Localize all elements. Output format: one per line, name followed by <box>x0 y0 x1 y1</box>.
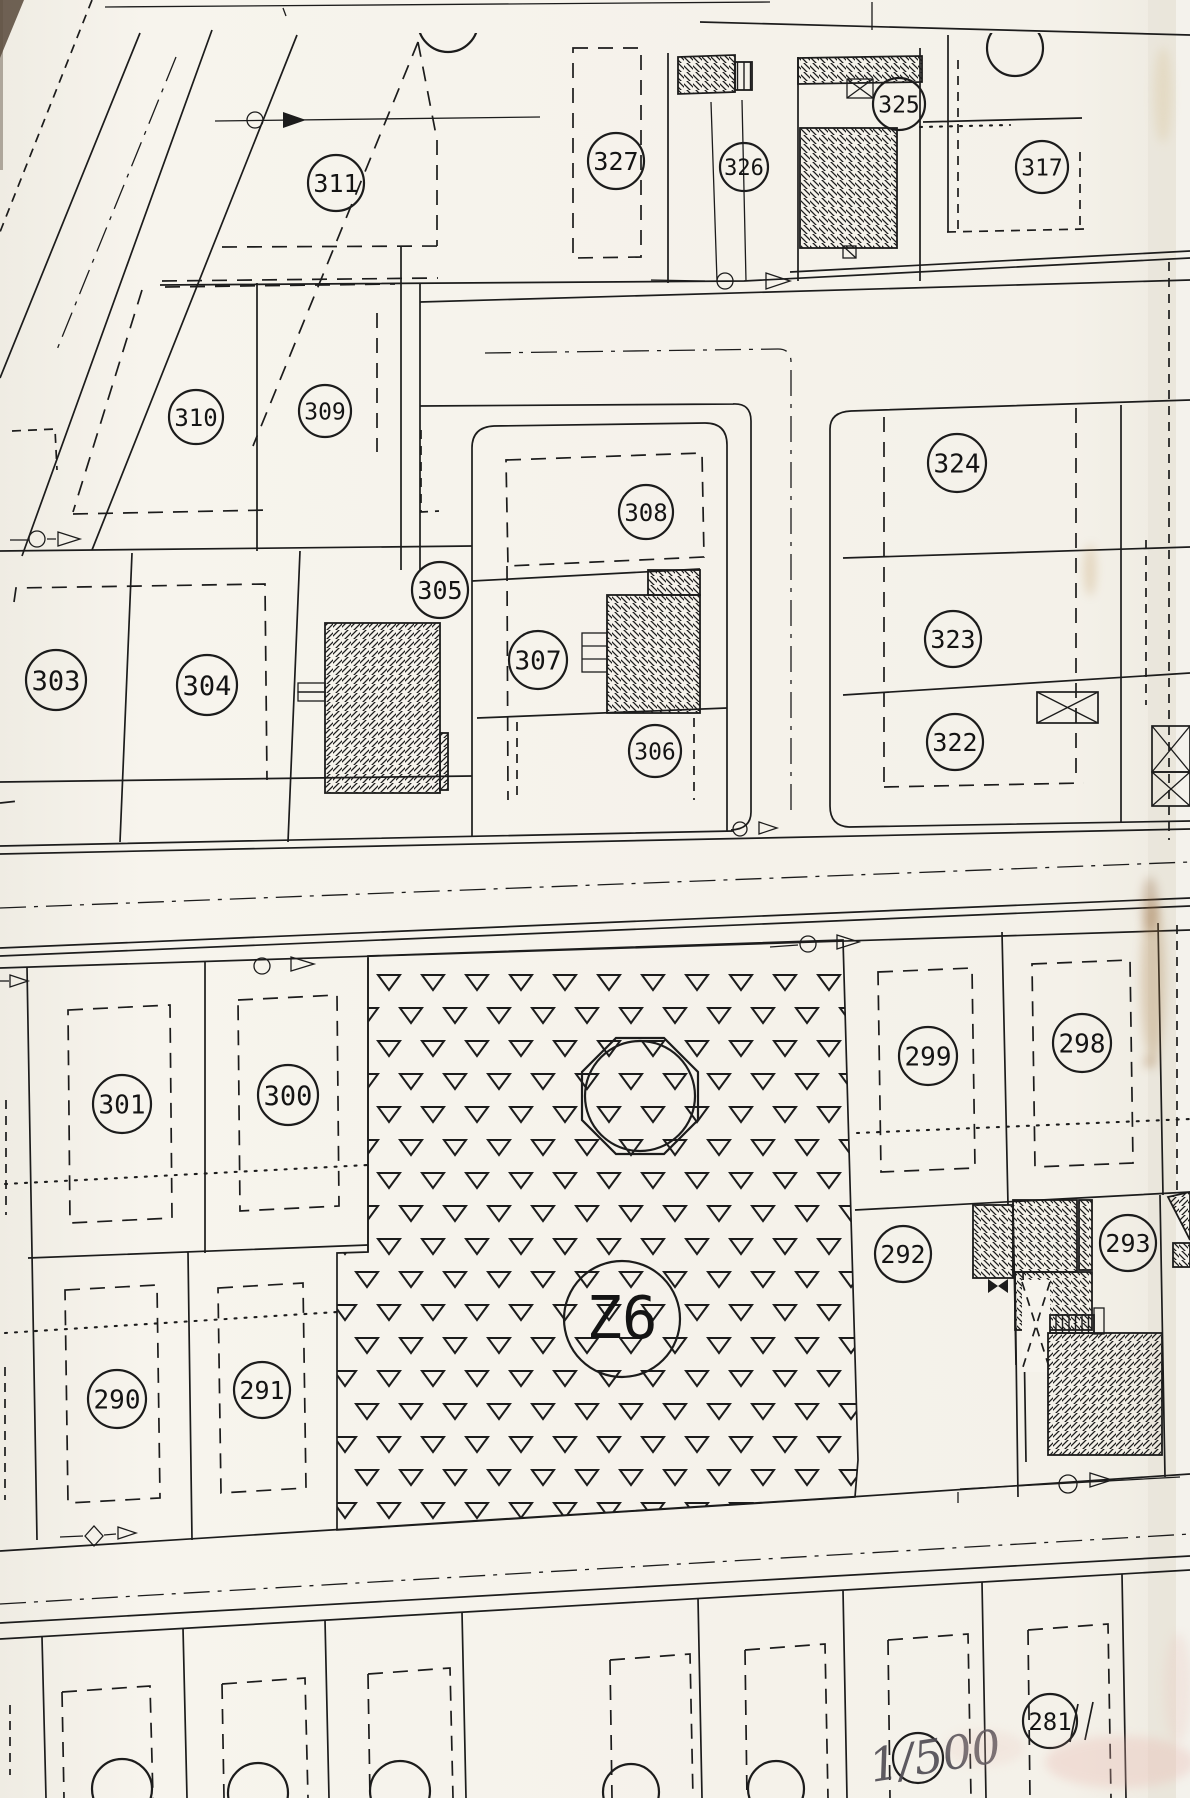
building-292c <box>1079 1200 1092 1270</box>
building-307-wing <box>648 570 700 595</box>
parcel-number: 307 <box>515 647 562 677</box>
parcel-number: 303 <box>32 666 81 697</box>
paper-background <box>0 0 1190 1798</box>
parcel-number: 323 <box>930 625 975 654</box>
parcel-number: 300 <box>264 1081 313 1112</box>
building-305 <box>325 623 440 793</box>
parcel-number: 317 <box>1021 156 1063 182</box>
parcel-number: 310 <box>174 404 217 432</box>
parcel-number: 304 <box>183 671 232 702</box>
stain <box>1084 544 1096 596</box>
parcel-number: 298 <box>1059 1030 1106 1060</box>
building-325-strip <box>798 56 922 84</box>
parcel-number: 301 <box>99 1091 146 1121</box>
parcel-number: 322 <box>932 728 977 757</box>
building-325-main <box>800 128 897 248</box>
building-292b <box>1013 1200 1077 1272</box>
building-307 <box>607 595 700 713</box>
parcel-number: 299 <box>905 1043 952 1073</box>
parcel-number: 308 <box>624 499 667 527</box>
parcel-number: 311 <box>313 169 358 198</box>
building-305-step <box>440 733 448 790</box>
parcel-number: 292 <box>880 1240 925 1269</box>
parcel-number: 327 <box>593 147 638 176</box>
parcel-number: 309 <box>304 400 346 426</box>
parcel-number: 293 <box>1105 1229 1150 1258</box>
parcel-number: 325 <box>878 93 920 119</box>
stain <box>1154 47 1172 143</box>
scanned-map-sheet: 3113273263253173103093083053073063033043… <box>0 0 1190 1798</box>
parcel-number: 290 <box>94 1386 141 1416</box>
parcel-number: 326 <box>724 156 764 181</box>
passage-gap <box>1022 1280 1050 1372</box>
rust-stain <box>1142 877 1158 933</box>
pink-smudge <box>1045 1736 1190 1788</box>
parcel-number: 305 <box>417 576 462 605</box>
building-annex-vertical-hatch <box>1050 1315 1094 1333</box>
parcel-number: 324 <box>934 450 981 480</box>
cadastral-map-scan: 3113273263253173103093083053073063033043… <box>0 0 1190 1798</box>
parcel-number: 291 <box>239 1376 284 1405</box>
paper-artifacts <box>0 0 1190 1798</box>
pink-smudge <box>945 1730 1025 1766</box>
building-326-annex <box>735 62 752 90</box>
parcel-number: 281 <box>1028 1708 1071 1736</box>
building-326 <box>678 55 735 94</box>
zone-number: Z6 <box>586 1283 657 1352</box>
building-292a <box>973 1205 1013 1278</box>
building-edge-fragment-2 <box>1173 1243 1190 1267</box>
rust-dot <box>1144 1056 1156 1068</box>
building-large-southeast <box>1048 1333 1162 1455</box>
parcel-number: 306 <box>634 740 676 766</box>
left-edge-shadow <box>0 0 3 170</box>
